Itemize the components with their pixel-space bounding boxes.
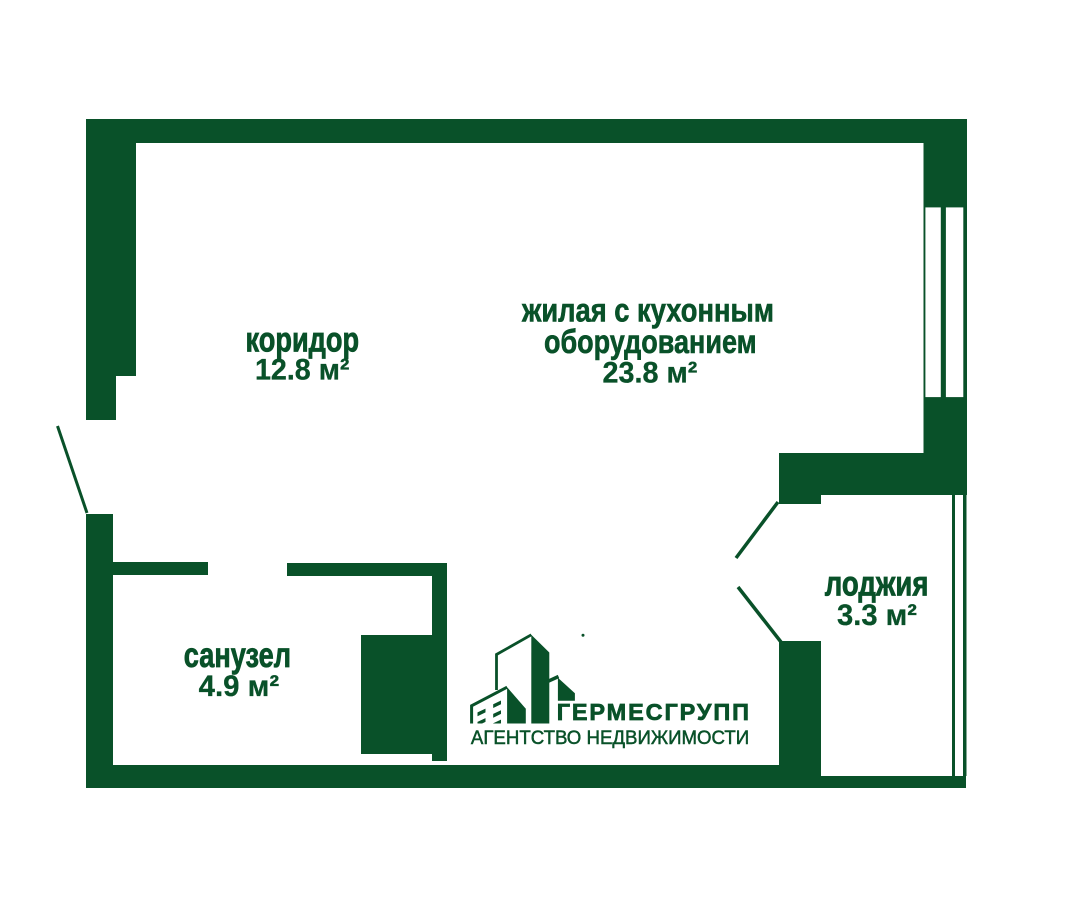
svg-text:лоджия: лоджия (825, 564, 929, 603)
svg-text:23.8 м²: 23.8 м² (603, 357, 698, 390)
svg-text:АГЕНТСТВО НЕДВИЖИМОСТИ: АГЕНТСТВО НЕДВИЖИМОСТИ (471, 728, 749, 749)
svg-text:3.3 м²: 3.3 м² (837, 599, 917, 632)
svg-text:оборудованием: оборудованием (544, 323, 757, 360)
svg-text:12.8 м²: 12.8 м² (255, 354, 350, 387)
svg-text:ГЕРМЕСГРУПП: ГЕРМЕСГРУПП (557, 699, 749, 725)
svg-text:4.9 м²: 4.9 м² (199, 670, 280, 703)
